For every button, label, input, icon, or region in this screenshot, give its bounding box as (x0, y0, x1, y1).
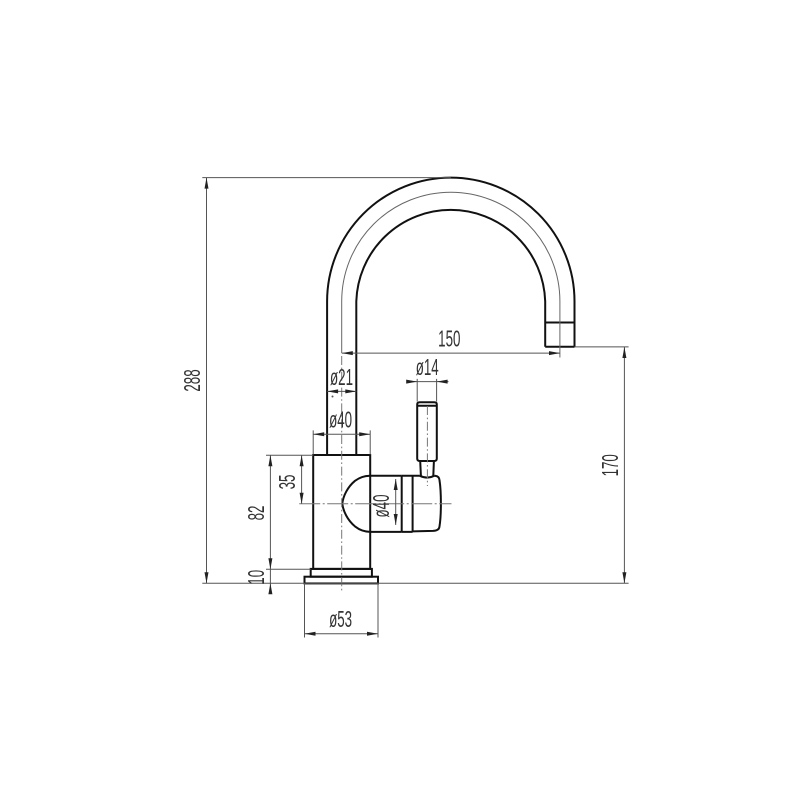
svg-text:35: 35 (274, 475, 300, 490)
svg-text:170: 170 (597, 454, 623, 476)
svg-text:82: 82 (243, 506, 269, 521)
svg-text:ø40: ø40 (329, 407, 352, 433)
svg-text:ø14: ø14 (416, 354, 439, 380)
svg-text:10: 10 (243, 570, 269, 585)
svg-text:ø21: ø21 (330, 364, 353, 390)
svg-text:150: 150 (438, 326, 460, 352)
svg-text:ø53: ø53 (329, 606, 352, 632)
svg-text:288: 288 (179, 369, 205, 391)
svg-text:ø40: ø40 (368, 495, 394, 518)
